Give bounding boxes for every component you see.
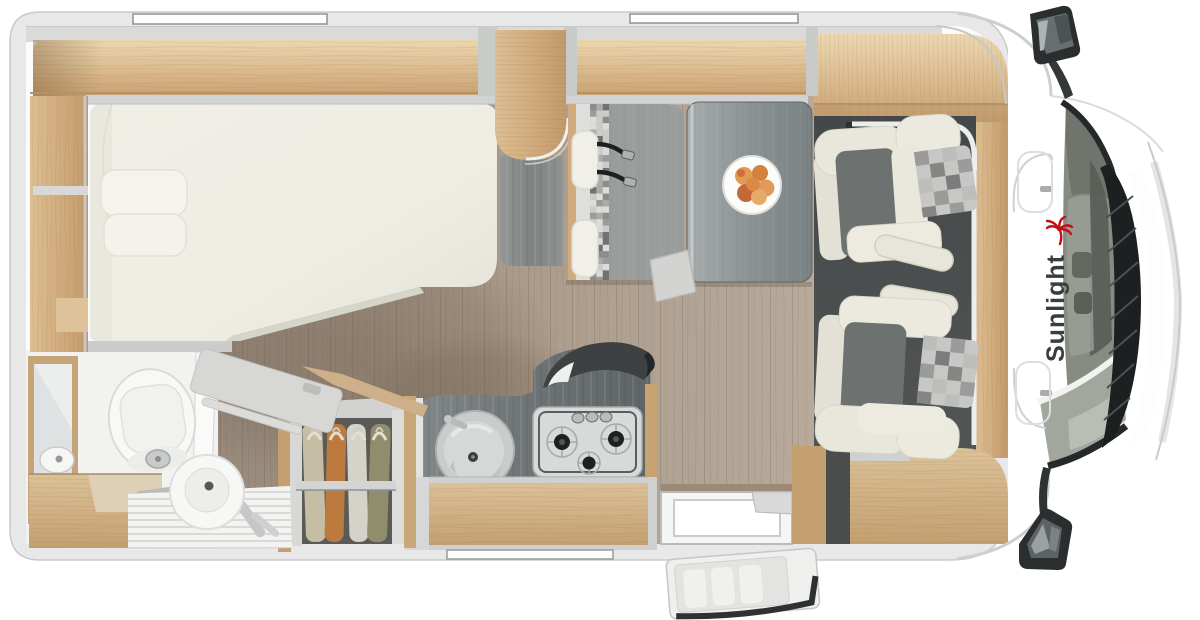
svg-text:Sunlight: Sunlight <box>1042 254 1070 362</box>
